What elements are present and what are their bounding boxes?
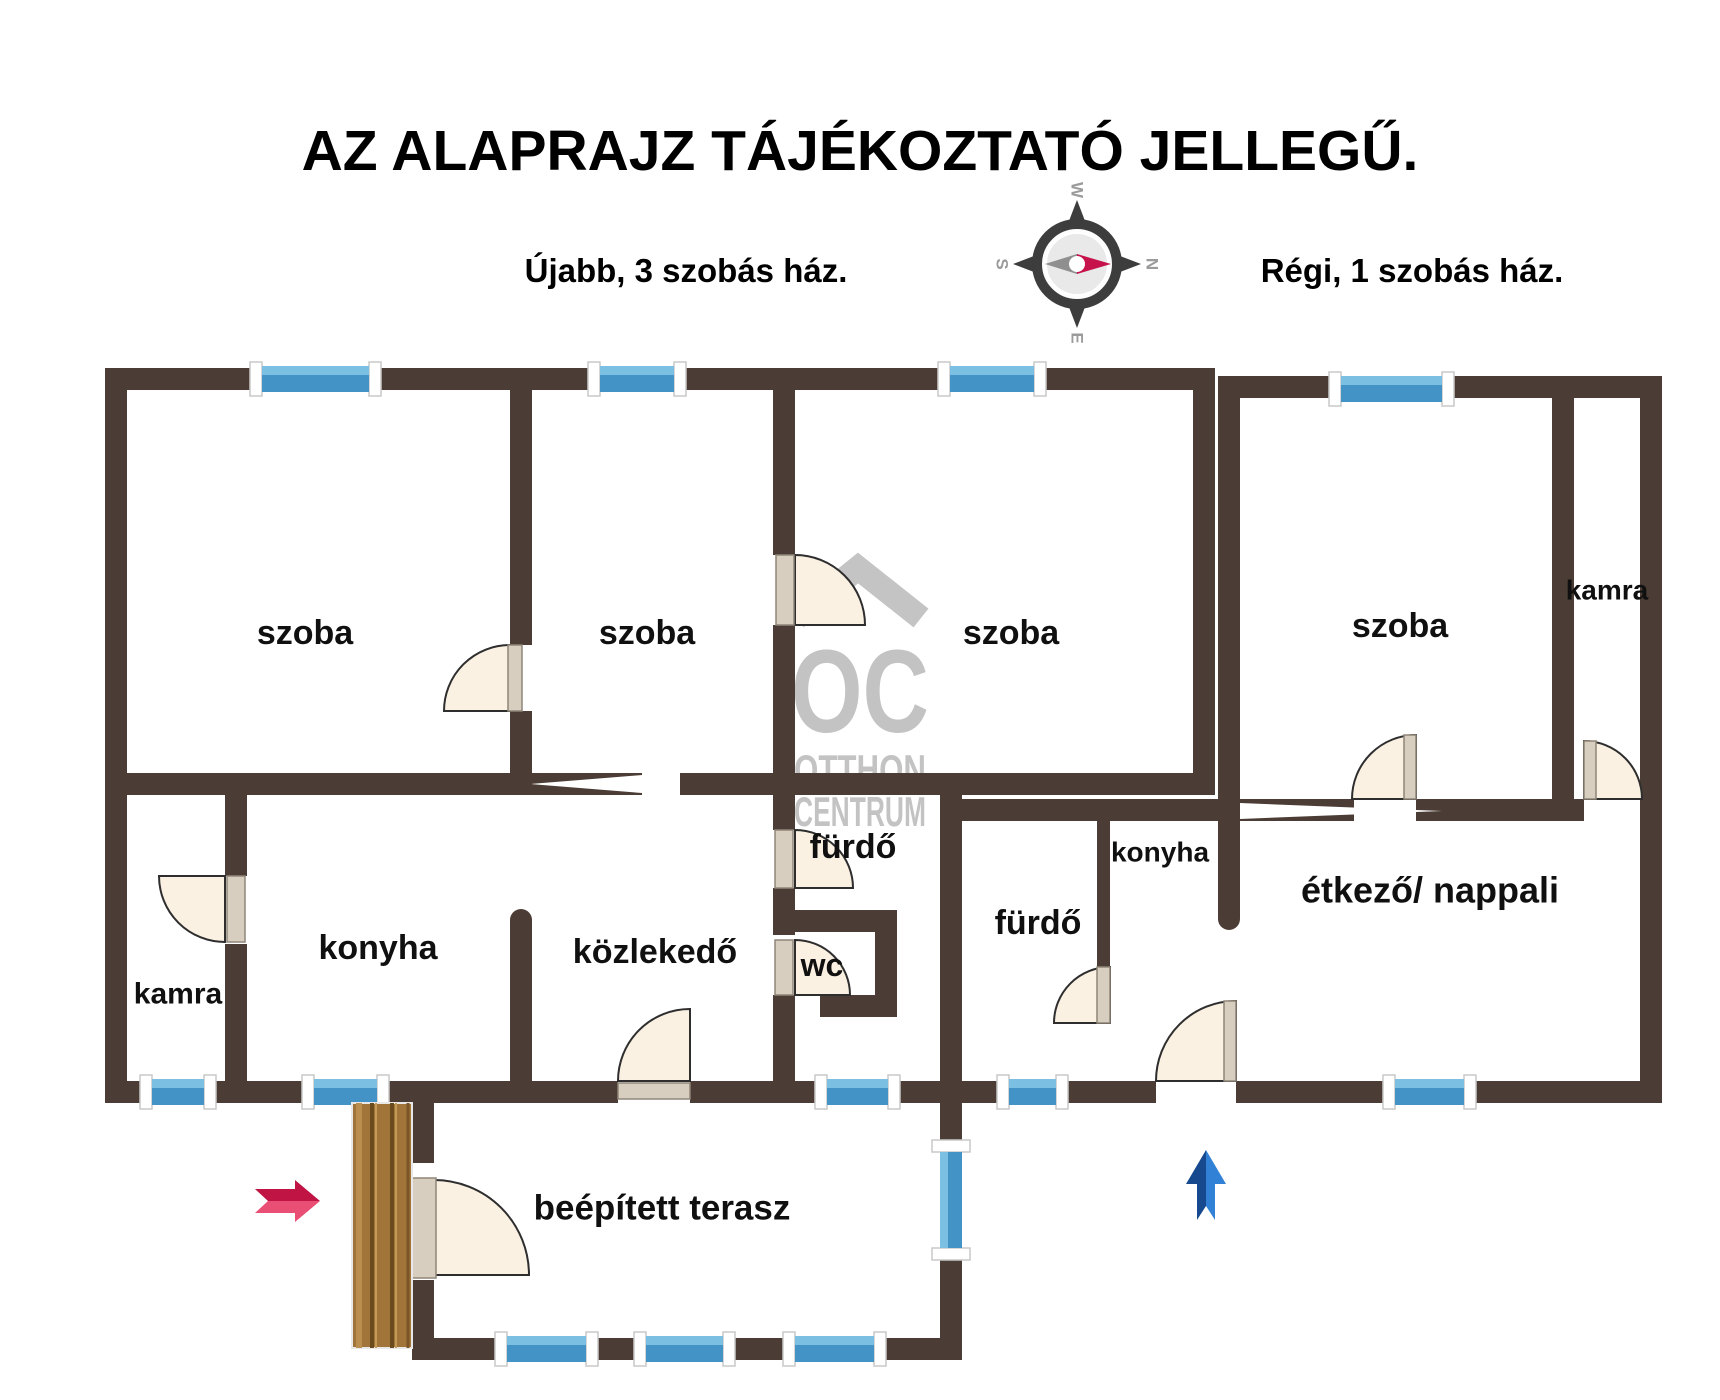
door-kamra-right bbox=[1584, 741, 1642, 799]
door-kozlekedo-terasz bbox=[618, 1009, 690, 1099]
window-etkezo bbox=[1383, 1075, 1476, 1109]
wall-szoba2-szoba3-lower bbox=[773, 625, 795, 795]
wall-szoba2-szoba3-upper bbox=[773, 390, 795, 555]
label-furdo-right: fürdő bbox=[995, 904, 1082, 942]
label-wc: wc bbox=[800, 947, 844, 983]
wall-furdo-west-3 bbox=[773, 995, 795, 1081]
window-terasz-east bbox=[932, 1140, 970, 1260]
label-kamra-left: kamra bbox=[134, 978, 223, 1011]
door-terasz-entrance bbox=[412, 1178, 529, 1278]
door-etkezo-entrance bbox=[1156, 1001, 1236, 1081]
wall-szoba1-szoba2-lower bbox=[510, 711, 532, 795]
label-terasz: beépített terasz bbox=[534, 1189, 791, 1228]
label-szoba2: szoba bbox=[599, 614, 696, 652]
door-kamra-left bbox=[159, 876, 245, 942]
wall-bottom-2 bbox=[690, 1081, 1156, 1103]
window-szoba2 bbox=[588, 362, 686, 396]
window-szoba3 bbox=[938, 362, 1046, 396]
label-szoba3: szoba bbox=[963, 614, 1060, 652]
window-annex-furdo bbox=[997, 1075, 1068, 1109]
wood-gate-icon bbox=[352, 1103, 412, 1348]
wall-old-konyha-east bbox=[1218, 821, 1240, 919]
window-wc-area bbox=[815, 1075, 900, 1109]
compass-south-label: S bbox=[993, 258, 1012, 269]
label-szoba1: szoba bbox=[257, 614, 354, 652]
door-szoba1 bbox=[444, 645, 522, 711]
subtitle-newer-house: Újabb, 3 szobás ház. bbox=[525, 252, 848, 289]
wall-middle-right-b bbox=[1416, 799, 1584, 821]
window-kamra-left bbox=[140, 1075, 216, 1109]
window-terasz-3 bbox=[783, 1332, 886, 1366]
wall-furdo-west-2 bbox=[773, 888, 795, 935]
window-szoba1 bbox=[250, 362, 381, 396]
window-terasz-1 bbox=[495, 1332, 598, 1366]
wall-szoba3-right bbox=[1193, 390, 1215, 773]
door-szoba4 bbox=[1352, 735, 1416, 799]
wall-middle-left-b bbox=[680, 773, 1215, 795]
label-kamra-right: kamra bbox=[1566, 575, 1649, 606]
label-konyha-left: konyha bbox=[318, 929, 438, 967]
wall-old-konyha-east-end bbox=[1218, 908, 1240, 930]
wall-kamra-sep-lower bbox=[225, 944, 247, 1081]
wall-konyha-kozlekedo bbox=[510, 920, 532, 1081]
wall-annex-west bbox=[940, 795, 962, 1081]
wall-kamra-sep-upper bbox=[225, 795, 247, 876]
label-szoba4: szoba bbox=[1352, 607, 1449, 645]
wall-old-left-upper bbox=[1218, 376, 1240, 821]
watermark-oc: OC bbox=[791, 626, 929, 758]
entrance-arrow-blue-icon bbox=[1186, 1150, 1226, 1220]
label-kozlekedo: közlekedő bbox=[573, 933, 737, 971]
entrance-arrow-red-icon bbox=[255, 1180, 320, 1222]
compass-east-label: E bbox=[1068, 332, 1087, 343]
label-konyha-right: konyha bbox=[1111, 837, 1209, 868]
wall-terrace-west-upper bbox=[412, 1103, 434, 1163]
window-terasz-2 bbox=[634, 1332, 735, 1366]
wall-old-right bbox=[1640, 376, 1662, 1103]
wall-konyha-kozlekedo-end bbox=[510, 909, 532, 931]
page-title: AZ ALAPRAJZ TÁJÉKOZTATÓ JELLEGŰ. bbox=[302, 118, 1419, 183]
compass-rose: W N E S bbox=[993, 182, 1162, 344]
compass-west-label: W bbox=[1068, 182, 1087, 199]
label-etkezo-nappali: étkező/ nappali bbox=[1301, 870, 1559, 911]
floor-plan-canvas: AZ ALAPRAJZ TÁJÉKOZTATÓ JELLEGŰ. Újabb, … bbox=[0, 0, 1720, 1400]
floor-plan-page: AZ ALAPRAJZ TÁJÉKOZTATÓ JELLEGŰ. Újabb, … bbox=[0, 0, 1720, 1400]
subtitle-old-house: Régi, 1 szobás ház. bbox=[1261, 252, 1564, 289]
wall-furdo-west-1 bbox=[773, 795, 795, 830]
wall-left-outer bbox=[105, 368, 127, 1103]
wall-szoba1-szoba2-upper bbox=[510, 390, 532, 645]
compass-north-label: N bbox=[1143, 258, 1162, 270]
wall-wc-bottom bbox=[820, 995, 897, 1017]
door-annex-furdo bbox=[1054, 967, 1110, 1023]
label-furdo-left: fürdő bbox=[810, 828, 897, 866]
window-szoba4 bbox=[1329, 372, 1454, 406]
